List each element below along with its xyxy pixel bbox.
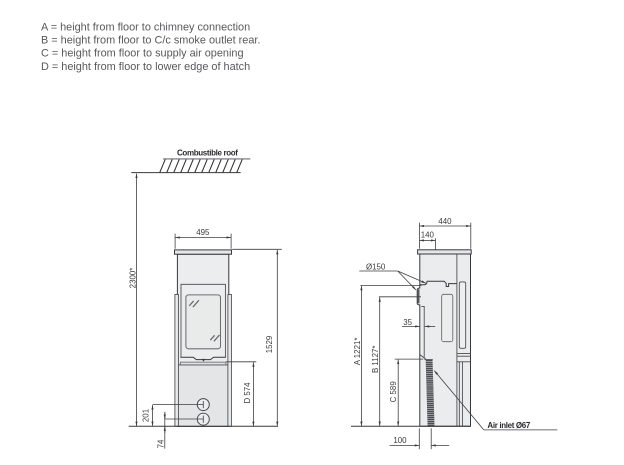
svg-text:A = height from floor to chimn: A = height from floor to chimney connect…: [41, 22, 250, 34]
svg-text:Air inlet Ø67: Air inlet Ø67: [487, 421, 530, 430]
svg-text:C = height from floor to suppl: C = height from floor to supply air open…: [41, 48, 244, 60]
svg-text:C 589: C 589: [389, 381, 398, 403]
svg-text:74: 74: [156, 439, 165, 448]
svg-text:B = height from floor to C/c s: B = height from floor to C/c smoke outle…: [41, 35, 260, 47]
svg-text:140: 140: [421, 231, 435, 240]
svg-text:2300*: 2300*: [128, 268, 137, 289]
svg-text:201: 201: [141, 409, 150, 422]
svg-text:35: 35: [403, 318, 412, 327]
svg-text:D 574: D 574: [243, 382, 252, 404]
svg-text:A 1221*: A 1221*: [353, 338, 362, 366]
svg-text:100: 100: [393, 436, 407, 445]
svg-text:Combustible roof: Combustible roof: [177, 149, 238, 158]
svg-text:1529: 1529: [265, 335, 274, 353]
svg-text:D = height from floor to lower: D = height from floor to lower edge of h…: [41, 61, 250, 73]
svg-text:Ø150: Ø150: [366, 262, 386, 271]
svg-text:440: 440: [438, 217, 452, 226]
svg-text:B 1127*: B 1127*: [371, 346, 380, 374]
svg-text:495: 495: [196, 228, 210, 237]
